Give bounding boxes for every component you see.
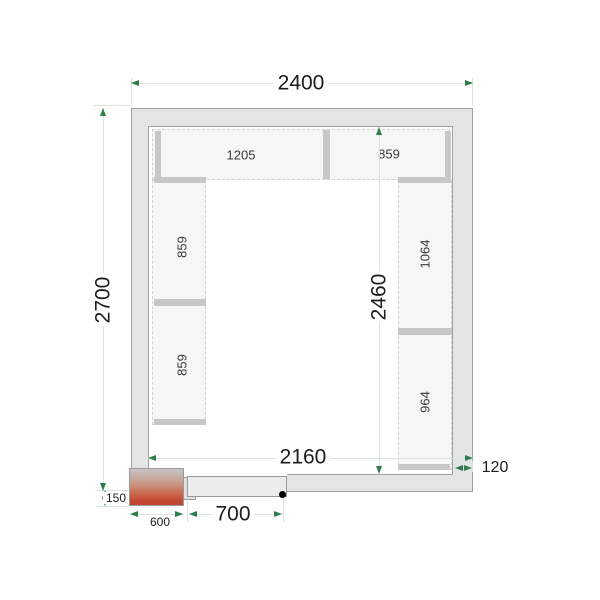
shelf-divider-top	[323, 130, 330, 179]
arrow-down-icon	[376, 466, 382, 474]
ext-line-wall-right	[472, 461, 473, 472]
dim-wall-thickness-label: 120	[479, 460, 512, 476]
shelf-cap-left-bottom	[154, 419, 206, 425]
dim-door-zone-depth-label: 150	[103, 492, 129, 504]
shelf-cap-left-top	[154, 177, 206, 183]
arrow-left-icon	[148, 455, 156, 461]
arrow-left-icon	[455, 465, 463, 471]
shelf-top	[152, 129, 450, 180]
arrow-left-icon	[130, 511, 138, 517]
door-heater-zone	[129, 468, 184, 506]
arrow-right-icon	[274, 511, 282, 517]
shelf-cap-right-bottom	[398, 464, 450, 470]
ext-line-door-left	[187, 501, 188, 523]
door-handle-dot	[279, 491, 286, 498]
arrow-up-icon	[100, 108, 106, 116]
arrow-up-icon	[376, 127, 382, 135]
door-panel	[187, 476, 287, 497]
shelf-divider-right	[398, 328, 452, 335]
arrow-left-icon	[131, 80, 139, 86]
shelf-label-top-right: 859	[378, 148, 400, 161]
shelf-label-right-upper: 1064	[419, 240, 432, 269]
dim-outer-depth-label: 2700	[93, 274, 114, 327]
arrow-right-icon	[465, 80, 473, 86]
shelf-post-top-right	[445, 131, 451, 177]
arrow-right-icon	[464, 465, 472, 471]
shelf-label-left-upper: 859	[176, 236, 189, 258]
arrow-right-icon	[175, 511, 183, 517]
ext-line-outer-depth-top	[93, 105, 129, 106]
dim-inner-width-label: 2160	[277, 447, 330, 468]
shelf-label-left-lower: 859	[176, 354, 189, 376]
shelf-right	[398, 180, 452, 470]
dim-outer-width-label: 2400	[275, 73, 328, 94]
arrow-left-icon	[189, 511, 197, 517]
shelf-divider-left	[154, 299, 206, 306]
ext-line-zone-depth-bottom	[97, 506, 129, 507]
arrow-right-icon	[465, 455, 473, 461]
dim-door-width-label: 700	[212, 504, 253, 525]
dim-inner-depth-label: 2460	[369, 271, 390, 324]
shelf-post-top-left	[155, 131, 161, 179]
shelf-label-top-left: 1205	[227, 149, 256, 162]
shelf-label-right-lower: 964	[419, 391, 432, 413]
shelf-cap-right-top	[398, 177, 451, 183]
ext-line-door-right	[283, 497, 284, 523]
floor-plan-canvas: 1205 859 859 859 1064 964 2400 2700 2460…	[0, 0, 600, 600]
dim-door-zone-width-label: 600	[147, 516, 173, 528]
